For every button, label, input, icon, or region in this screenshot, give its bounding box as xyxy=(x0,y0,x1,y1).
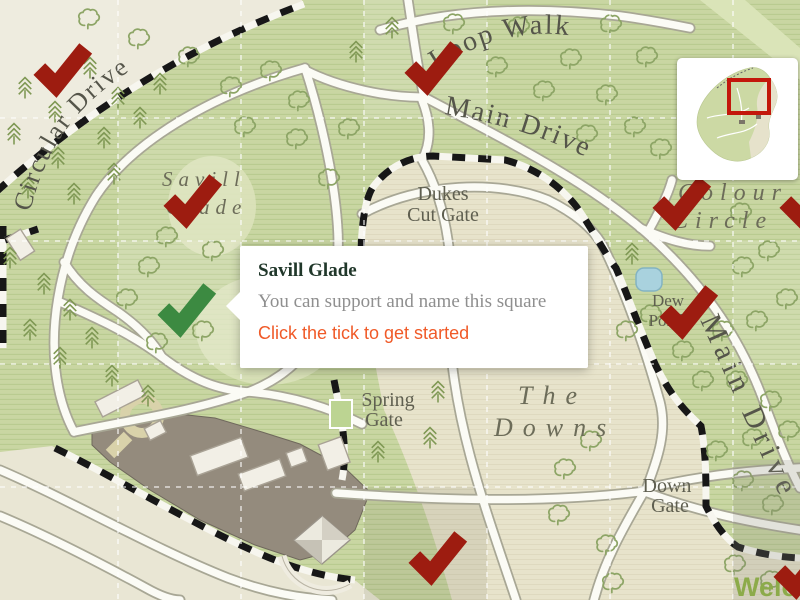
label-the-downs-2: Downs xyxy=(493,413,616,442)
dew-pond xyxy=(636,268,662,291)
tooltip-body: You can support and name this square xyxy=(258,291,572,313)
label-down-gate-2: Gate xyxy=(651,495,689,517)
label-spring-gate-1: Spring xyxy=(361,389,414,411)
label-the-downs-1: The xyxy=(518,381,587,410)
label-down-gate-1: Down xyxy=(643,475,692,497)
label-dukes-cut-gate-1: Dukes xyxy=(417,183,468,205)
tooltip-title: Savill Glade xyxy=(258,260,572,282)
label-dew-pond-1: Dew xyxy=(652,291,685,310)
square-tooltip: Savill Glade You can support and name th… xyxy=(240,246,588,368)
label-dukes-cut-gate-2: Cut Gate xyxy=(407,204,479,226)
tooltip-cta-link[interactable]: Click the tick to get started xyxy=(258,323,469,344)
label-spring-gate-2: Gate xyxy=(365,409,403,431)
park-map-viewport[interactable]: Circular Drive Loop Walk Main Drive Main… xyxy=(0,0,800,600)
overview-minimap[interactable] xyxy=(677,58,798,180)
